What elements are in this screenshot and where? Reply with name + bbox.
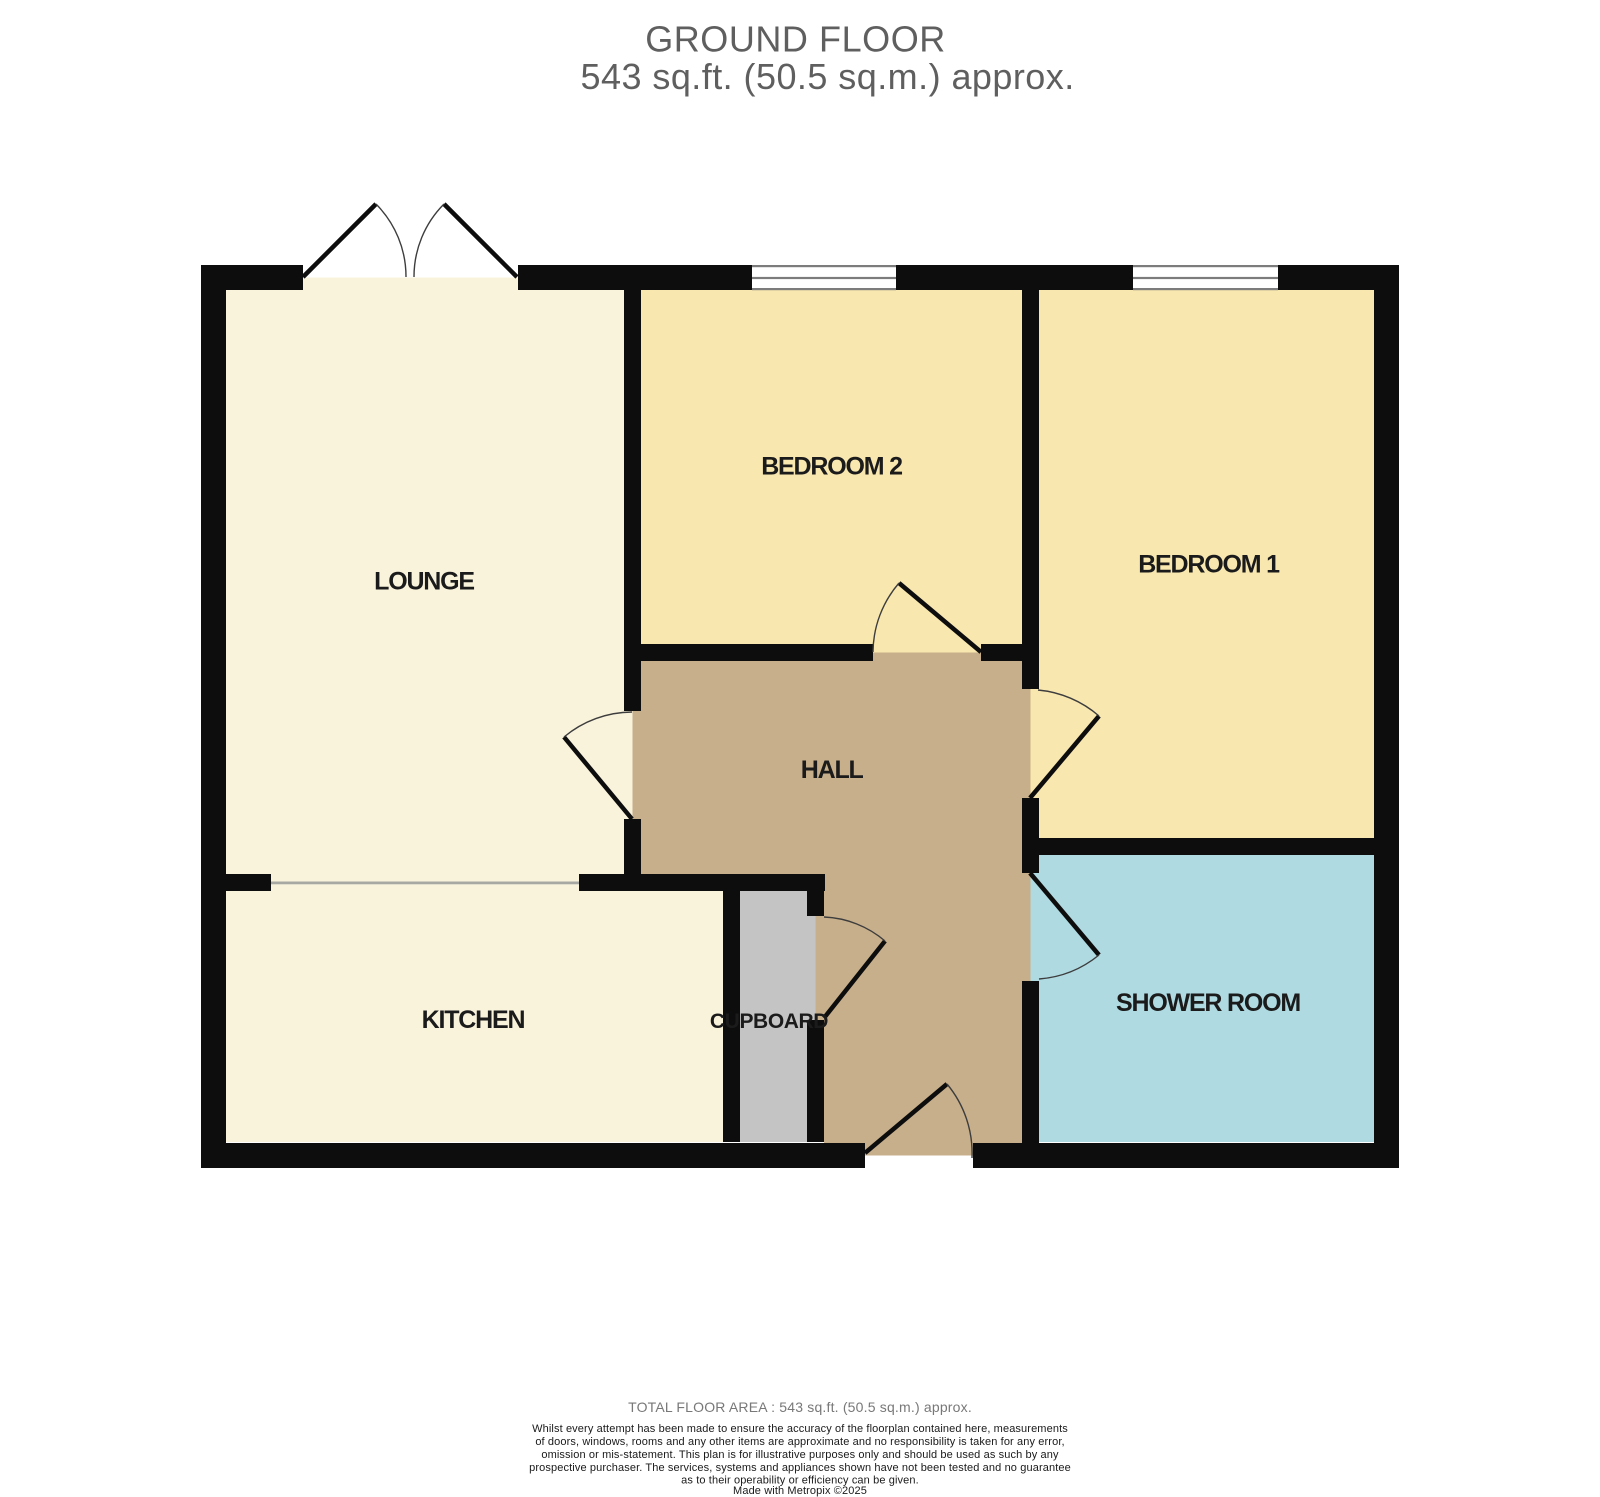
- svg-text:BEDROOM 1: BEDROOM 1: [1138, 550, 1280, 578]
- svg-text:Made with Metropix ©2025: Made with Metropix ©2025: [733, 1485, 867, 1497]
- svg-text:TOTAL FLOOR AREA : 543 sq.ft.: TOTAL FLOOR AREA : 543 sq.ft. (50.5 sq.m…: [628, 1399, 972, 1415]
- svg-text:CUPBOARD: CUPBOARD: [710, 1010, 828, 1033]
- svg-text:Whilst every attempt has been: Whilst every attempt has been made to en…: [532, 1423, 1068, 1435]
- svg-text:prospective purchaser. The ser: prospective purchaser. The services, sys…: [529, 1462, 1071, 1474]
- svg-text:HALL: HALL: [801, 756, 864, 784]
- svg-text:BEDROOM 2: BEDROOM 2: [761, 453, 902, 481]
- svg-text:LOUNGE: LOUNGE: [374, 568, 474, 596]
- svg-text:GROUND FLOOR: GROUND FLOOR: [645, 18, 946, 59]
- svg-text:of doors, windows, rooms and a: of doors, windows, rooms and any other i…: [535, 1436, 1064, 1448]
- svg-text:543 sq.ft. (50.5 sq.m.) approx: 543 sq.ft. (50.5 sq.m.) approx.: [581, 56, 1075, 97]
- svg-text:KITCHEN: KITCHEN: [422, 1006, 525, 1034]
- svg-text:SHOWER ROOM: SHOWER ROOM: [1116, 989, 1300, 1017]
- svg-text:omission or mis-statement. Thi: omission or mis-statement. This plan is …: [541, 1449, 1059, 1461]
